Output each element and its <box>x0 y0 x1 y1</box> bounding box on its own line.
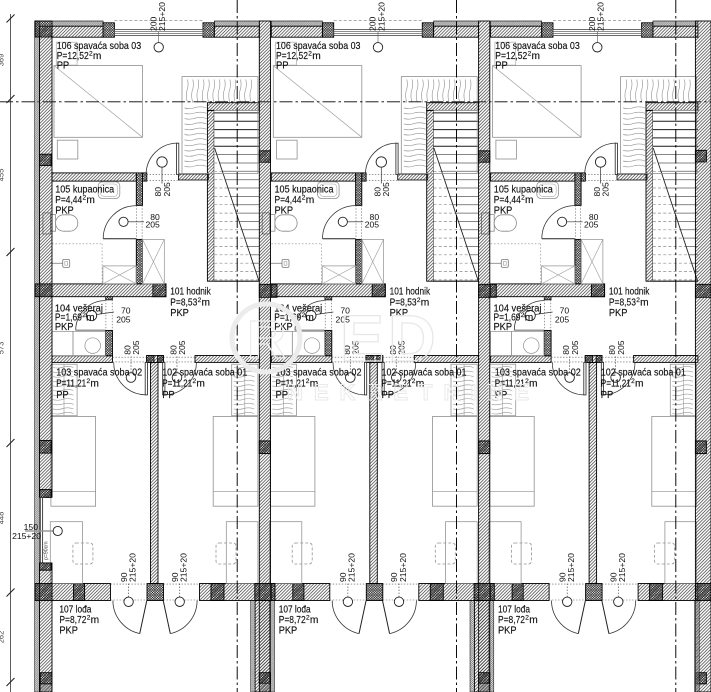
svg-text:262: 262 <box>0 631 6 644</box>
svg-text:ED: ED <box>340 301 440 375</box>
svg-text:R: R <box>247 310 286 370</box>
svg-text:369: 369 <box>0 54 6 67</box>
svg-text:573: 573 <box>0 342 6 355</box>
svg-text:NEKRETNINE: NEKRETNINE <box>287 380 540 405</box>
svg-text:215+20: 215+20 <box>12 531 41 541</box>
svg-text:455: 455 <box>0 169 6 182</box>
svg-text:p=90cm: p=90cm <box>44 541 50 560</box>
svg-text:448: 448 <box>0 512 6 525</box>
